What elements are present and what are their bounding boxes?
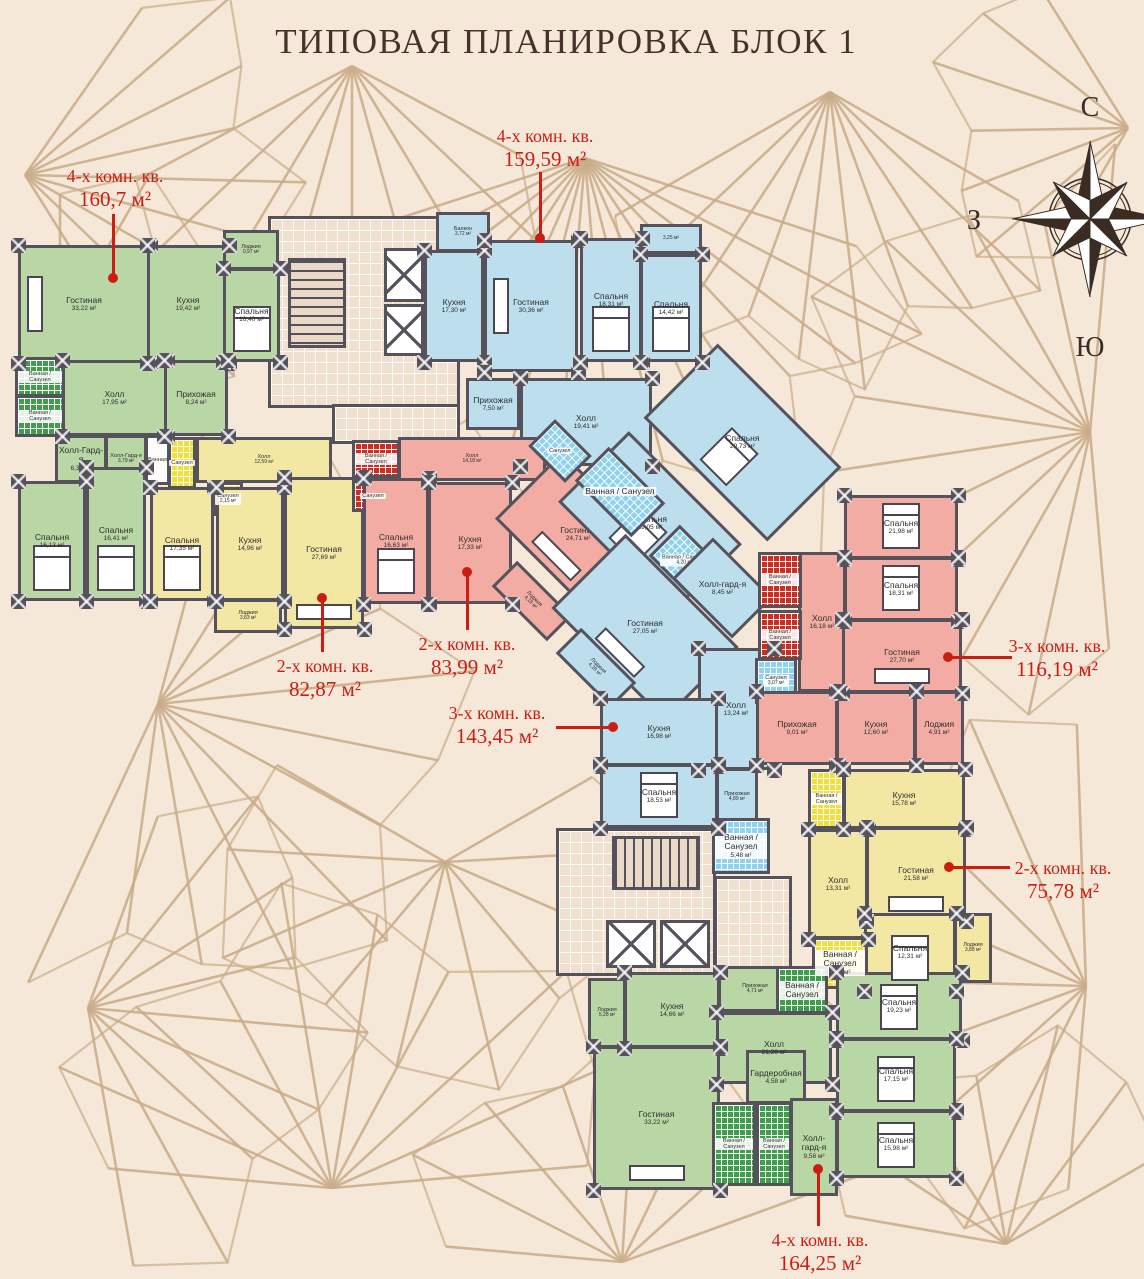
column-icon xyxy=(513,459,528,474)
room-label: Прихожая7,50 м² xyxy=(473,396,512,412)
column-icon xyxy=(11,594,26,609)
room-label: Санузел3,07 м² xyxy=(763,675,788,687)
bed-icon xyxy=(377,548,415,594)
room-85-ванная-санузел: Ванная / Санузел xyxy=(756,1102,792,1186)
column-icon xyxy=(221,353,236,368)
room-label: Кухня16,98 м² xyxy=(647,724,672,740)
apartment-callout-4: 2-х комн. кв.83,99 м² xyxy=(372,634,562,680)
column-icon xyxy=(11,356,26,371)
room-21-спальня: Спальня16,13 м² xyxy=(18,481,86,601)
column-icon xyxy=(857,906,872,921)
room-79-ванная-санузел: Ванная / Санузел xyxy=(776,966,828,1014)
compass-rose-icon: С Ю З xyxy=(960,72,1144,372)
room-label: Гостиная21,58 м² xyxy=(898,866,934,882)
room-label: Холл-гард-я8,45 м² xyxy=(699,580,746,596)
column-icon xyxy=(837,488,852,503)
apartment-callout-2: 4-х комн. кв.159,59 м² xyxy=(450,126,640,172)
floor-plan-page: ТИПОВАЯ ПЛАНИРОВКА БЛОК 1 С Ю З Гостиная… xyxy=(0,0,1144,1279)
column-icon xyxy=(958,762,973,777)
room-27-спальня: Спальня17,35 м² xyxy=(150,487,214,601)
room-87-спальня: Спальня17,15 м² xyxy=(836,1038,956,1112)
room-82-гардеробная: Гардеробная4,58 м² xyxy=(746,1050,806,1104)
column-icon xyxy=(633,355,648,370)
column-icon xyxy=(829,965,844,980)
room-37-прихожая: Прихожая7,50 м² xyxy=(466,378,520,430)
room-label: Кухня15,78 м² xyxy=(892,791,917,807)
room-86-спальня: Спальня19,23 м² xyxy=(836,972,962,1040)
column-icon xyxy=(277,594,292,609)
room-label: Ванная / Санузел xyxy=(355,453,397,465)
column-icon xyxy=(801,822,816,837)
column-icon xyxy=(586,1039,601,1054)
room-label: Кухня12,60 м² xyxy=(864,720,889,736)
column-icon xyxy=(55,429,70,444)
apartment-callout-6: 3-х комн. кв.116,19 м² xyxy=(962,636,1144,682)
column-icon xyxy=(713,1183,728,1198)
column-icon xyxy=(277,622,292,637)
column-icon xyxy=(695,355,710,370)
room-14-спальня: Спальня16,40 м² xyxy=(223,268,280,362)
room-22-спальня: Спальня16,41 м² xyxy=(86,467,146,601)
callout-leader-line xyxy=(466,572,469,630)
callout-dot xyxy=(608,722,618,732)
compass-west-label: З xyxy=(967,205,981,236)
column-icon xyxy=(955,965,970,980)
room-77-кухня: Кухня14,66 м² xyxy=(624,972,720,1048)
room-label: Ванная / Санузел xyxy=(583,487,656,496)
callout-dot xyxy=(535,233,545,243)
room-label: Кухня19,42 м² xyxy=(176,296,201,312)
column-icon xyxy=(949,1171,964,1186)
room-label: Холл14,18 м² xyxy=(462,453,481,465)
room-label: Лоджия0,97 м² xyxy=(241,244,261,256)
callout-dot xyxy=(108,273,118,283)
column-icon xyxy=(593,691,608,706)
apartment-callout-7: 2-х комн. кв.75,78 м² xyxy=(968,858,1144,904)
room-label: Лоджия3,83 м² xyxy=(238,610,258,622)
room-label: Гостиная27,70 м² xyxy=(884,648,920,664)
column-icon xyxy=(221,429,236,444)
column-icon xyxy=(695,247,710,262)
column-icon xyxy=(593,821,608,836)
room-label: Прихожая4,71 м² xyxy=(742,983,768,995)
column-icon xyxy=(691,763,706,778)
column-icon xyxy=(477,233,492,248)
column-icon xyxy=(713,965,728,980)
room-label: Ванная / Санузел xyxy=(18,371,62,383)
bed-icon xyxy=(882,503,920,549)
room-70-ванная-санузел: Ванная / Санузел xyxy=(808,769,845,829)
room-64-спальня: Спальня18,31 м² xyxy=(844,557,958,621)
room-24-санузел: Санузел xyxy=(168,437,196,489)
room-label: Балкон3,72 м² xyxy=(454,226,472,238)
column-icon xyxy=(959,820,974,835)
column-icon xyxy=(645,371,660,386)
column-icon xyxy=(157,353,172,368)
column-icon xyxy=(825,1077,840,1092)
column-icon xyxy=(140,356,155,371)
room-label: Прихожая4,89 м² xyxy=(724,791,750,803)
callout-dot xyxy=(944,862,954,872)
column-icon xyxy=(505,597,520,612)
room-label: Лоджия4,28 м² xyxy=(585,657,607,679)
column-icon xyxy=(55,353,70,368)
room-label: Холл16,18 м² xyxy=(810,614,835,630)
column-icon xyxy=(949,1031,964,1046)
column-icon xyxy=(143,480,158,495)
room-30-лоджия: Лоджия3,83 м² xyxy=(214,599,282,633)
room-label: Санузел xyxy=(547,448,572,454)
column-icon xyxy=(586,1183,601,1198)
room-32-кухня: Кухня17,30 м² xyxy=(424,250,484,362)
column-icon xyxy=(951,488,966,503)
room-11-гостиная: Гостиная33,22 м² xyxy=(18,245,150,363)
column-icon xyxy=(11,474,26,489)
column-icon xyxy=(909,758,924,773)
column-icon xyxy=(573,231,588,246)
room-label: Холл17,95 м² xyxy=(102,390,127,406)
room-label: Ванная / Санузел xyxy=(811,793,842,805)
room-label: Гостиная33,22 м² xyxy=(639,1110,675,1126)
column-icon xyxy=(593,757,608,772)
column-icon xyxy=(909,684,924,699)
room-label: Холл13,24 м² xyxy=(724,701,749,717)
room-label: Холл19,41 м² xyxy=(574,414,599,430)
room-label: Ванная / Санузел5,48 м² xyxy=(715,833,767,859)
column-icon xyxy=(139,460,154,475)
column-icon xyxy=(836,762,851,777)
column-icon xyxy=(857,984,872,999)
column-icon xyxy=(709,1005,724,1020)
room-66-кухня: Кухня12,60 м² xyxy=(836,691,916,765)
bed-icon xyxy=(880,984,918,1030)
callout-dot xyxy=(813,1164,823,1174)
room-15-холл: Холл17,95 м² xyxy=(62,360,167,436)
column-icon xyxy=(513,371,528,386)
room-label: Ванная / Санузел xyxy=(779,981,825,1000)
column-icon xyxy=(645,459,660,474)
room-67-лоджия: Лоджия4,91 м² xyxy=(914,691,964,765)
column-icon xyxy=(635,231,650,246)
bed-icon xyxy=(652,306,690,352)
room-7-core xyxy=(714,876,792,976)
room-36-спальня: Спальня14,42 м² xyxy=(640,254,702,362)
column-icon xyxy=(837,550,852,565)
column-icon xyxy=(209,480,224,495)
room-label: Ванная / Санузел xyxy=(715,1138,753,1150)
room-label: Ванная / Санузел xyxy=(761,629,799,641)
room-label: Гостиная30,36 м² xyxy=(513,298,549,314)
column-icon xyxy=(859,820,874,835)
room-label: Холл12,59 м² xyxy=(254,454,273,466)
room-label: Спальня16,63 м² xyxy=(379,533,413,549)
column-icon xyxy=(79,594,94,609)
room-28-кухня: Кухня14,96 м² xyxy=(216,487,284,601)
room-label: Холл-гард-я9,58 м² xyxy=(793,1134,835,1160)
column-icon xyxy=(749,684,764,699)
room-label: 3,25 м² xyxy=(663,236,679,242)
column-icon xyxy=(767,641,782,656)
room-33-гостиная: Гостиная30,36 м² xyxy=(484,240,578,372)
column-icon xyxy=(831,684,846,699)
column-icon xyxy=(829,1171,844,1186)
column-icon xyxy=(273,261,288,276)
callout-leader-line xyxy=(321,598,324,652)
sofa-icon xyxy=(629,1165,685,1181)
bed-icon xyxy=(640,772,678,818)
column-icon xyxy=(949,906,964,921)
room-label: Холл-Гард-я3,79 м² xyxy=(110,453,141,465)
column-icon xyxy=(836,822,851,837)
callout-leader-line xyxy=(539,172,542,238)
compass-south-label: Ю xyxy=(1076,332,1105,363)
column-icon xyxy=(617,965,632,980)
column-icon xyxy=(767,763,782,778)
bed-icon xyxy=(882,565,920,611)
room-68-прихожая: Прихожая9,01 м² xyxy=(756,691,838,765)
column-icon xyxy=(749,758,764,773)
room-81-гостиная: Гостиная33,22 м² xyxy=(593,1046,720,1190)
room-84-ванная-санузел: Ванная / Санузел xyxy=(712,1102,756,1186)
column-icon xyxy=(143,594,158,609)
column-icon xyxy=(955,686,970,701)
room-label: Кухня14,96 м² xyxy=(238,536,263,552)
column-icon xyxy=(825,1005,840,1020)
column-icon xyxy=(801,932,816,947)
column-icon xyxy=(829,1031,844,1046)
sofa-icon xyxy=(27,276,43,332)
bed-icon xyxy=(163,545,201,591)
room-label: Кухня17,33 м² xyxy=(458,535,483,551)
column-icon xyxy=(951,550,966,565)
room-10-elev xyxy=(660,920,710,968)
bed-icon xyxy=(891,935,929,981)
column-icon xyxy=(79,460,94,475)
column-icon xyxy=(273,355,288,370)
column-icon xyxy=(835,612,850,627)
apartment-callout-5: 3-х комн. кв.143,45 м² xyxy=(402,703,592,749)
room-label: Прихожая9,01 м² xyxy=(777,720,816,736)
column-icon xyxy=(711,757,726,772)
column-icon xyxy=(713,1039,728,1054)
sofa-icon xyxy=(874,668,930,684)
apartment-callout-8: 4-х комн. кв.164,25 м² xyxy=(725,1230,915,1276)
callout-dot xyxy=(462,567,472,577)
column-icon xyxy=(356,471,371,486)
room-label: Лоджия4,18 м² xyxy=(521,590,543,612)
room-8-stairs-h xyxy=(612,836,700,890)
room-label: Гостиная27,05 м² xyxy=(627,619,663,635)
room-3-stairs-v xyxy=(288,258,346,348)
column-icon xyxy=(11,238,26,253)
column-icon xyxy=(949,984,964,999)
room-61-ванная-санузел: Ванная / Санузел xyxy=(758,552,802,608)
bed-icon xyxy=(877,1122,915,1168)
room-label: Гостиная27,69 м² xyxy=(306,545,342,561)
column-icon xyxy=(861,932,876,947)
room-label: Ванная / Санузел xyxy=(18,410,62,422)
column-icon xyxy=(573,355,588,370)
room-label: Лоджия4,91 м² xyxy=(924,720,954,736)
column-icon xyxy=(691,641,706,656)
room-5-elev xyxy=(384,304,424,356)
room-label: Лоджия5,28 м² xyxy=(597,1007,617,1019)
apartment-callout-1: 4-х комн. кв.160,7 м² xyxy=(20,166,210,212)
column-icon xyxy=(222,238,237,253)
page-title: ТИПОВАЯ ПЛАНИРОВКА БЛОК 1 xyxy=(275,22,857,62)
sofa-icon xyxy=(531,531,582,582)
room-label: Гостиная33,22 м² xyxy=(66,296,102,312)
room-label: Ванная / Санузел xyxy=(759,1138,789,1150)
compass-north-label: С xyxy=(1081,92,1100,123)
column-icon xyxy=(209,594,224,609)
column-icon xyxy=(421,475,436,490)
room-label: Кухня17,30 м² xyxy=(442,298,467,314)
bed-icon xyxy=(877,1056,915,1102)
room-63-спальня: Спальня21,98 м² xyxy=(844,495,958,559)
sofa-icon xyxy=(296,604,352,620)
column-icon xyxy=(505,475,520,490)
room-label: Санузел xyxy=(169,460,194,466)
room-9-elev xyxy=(606,920,656,968)
column-icon xyxy=(277,470,292,485)
callout-leader-line xyxy=(817,1169,820,1226)
column-icon xyxy=(711,821,726,836)
column-icon xyxy=(356,597,371,612)
column-icon xyxy=(709,1077,724,1092)
bed-icon xyxy=(33,545,71,591)
column-icon xyxy=(421,597,436,612)
room-56-кухня: Кухня16,98 м² xyxy=(600,698,718,766)
room-label: Кухня14,66 м² xyxy=(660,1002,685,1018)
column-icon xyxy=(417,355,432,370)
sofa-icon xyxy=(888,896,944,912)
room-label: Лоджия3,88 м² xyxy=(963,942,983,954)
column-icon xyxy=(79,474,94,489)
column-icon xyxy=(477,365,492,380)
room-label: Гардеробная4,58 м² xyxy=(750,1069,801,1085)
sofa-icon xyxy=(493,278,509,334)
room-label: Прихожая8,24 м² xyxy=(176,390,215,406)
column-icon xyxy=(955,612,970,627)
column-icon xyxy=(140,238,155,253)
column-icon xyxy=(949,1103,964,1118)
column-icon xyxy=(711,691,726,706)
callout-leader-line xyxy=(112,214,115,278)
column-icon xyxy=(829,1103,844,1118)
room-label: Холл13,31 м² xyxy=(826,876,851,892)
bed-icon xyxy=(97,545,135,591)
column-icon xyxy=(633,247,648,262)
room-label: Ванная / Санузел xyxy=(761,574,799,586)
column-icon xyxy=(617,1041,632,1056)
room-label: Спальня16,41 м² xyxy=(99,526,133,542)
bed-icon xyxy=(233,306,271,352)
callout-dot xyxy=(943,652,953,662)
column-icon xyxy=(157,429,172,444)
column-icon xyxy=(417,243,432,258)
bed-icon xyxy=(699,427,758,486)
callout-dot xyxy=(317,593,327,603)
room-43-спальня: Спальня16,63 м² xyxy=(363,478,429,604)
room-16-прихожая: Прихожая8,24 м² xyxy=(164,360,228,436)
room-88-спальня: Спальня15,98 м² xyxy=(836,1110,956,1178)
room-76-лоджия: Лоджия5,28 м² xyxy=(588,978,626,1048)
column-icon xyxy=(216,261,231,276)
bed-icon xyxy=(592,306,630,352)
column-icon xyxy=(357,622,372,637)
